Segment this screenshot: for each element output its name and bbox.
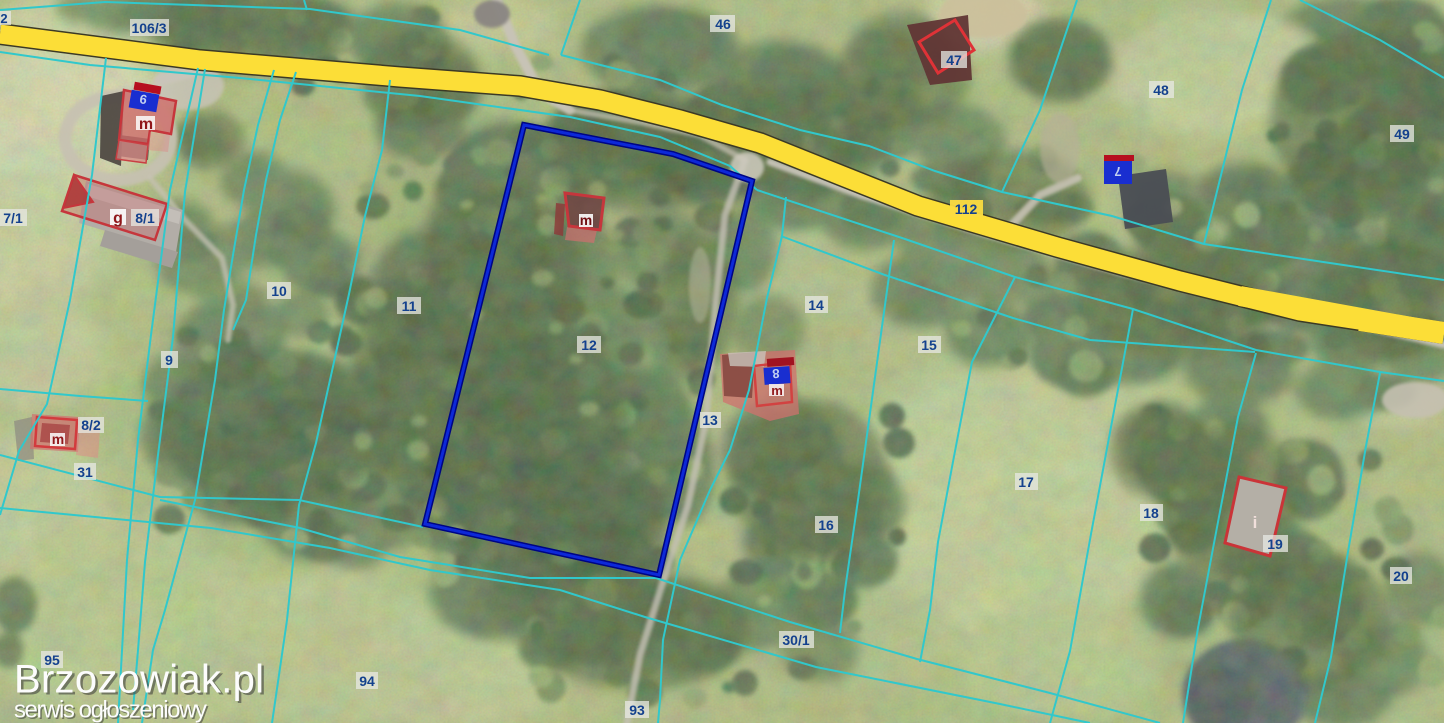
svg-text:30/1: 30/1 — [782, 632, 809, 648]
svg-text:8: 8 — [772, 366, 780, 381]
svg-text:11: 11 — [402, 298, 417, 314]
svg-text:7/1: 7/1 — [3, 210, 23, 226]
svg-text:18: 18 — [1143, 505, 1159, 521]
svg-text:112: 112 — [955, 201, 978, 217]
svg-text:15: 15 — [921, 337, 937, 353]
svg-text:94: 94 — [359, 673, 375, 689]
svg-text:9: 9 — [165, 352, 173, 368]
svg-text:46: 46 — [715, 16, 731, 32]
svg-text:m: m — [580, 212, 592, 228]
svg-text:8/1: 8/1 — [135, 210, 155, 226]
svg-text:m: m — [52, 431, 64, 447]
svg-text:31: 31 — [77, 464, 93, 480]
svg-text:m: m — [139, 116, 153, 133]
svg-text:19: 19 — [1267, 536, 1283, 552]
svg-text:106/3: 106/3 — [131, 20, 166, 36]
svg-text:8/2: 8/2 — [81, 417, 101, 433]
svg-text:m: m — [771, 383, 783, 398]
svg-text:7: 7 — [1114, 164, 1121, 179]
svg-text:10: 10 — [271, 283, 287, 299]
svg-text:Brzozowiak.pl: Brzozowiak.pl — [14, 658, 264, 702]
svg-text:16: 16 — [818, 517, 834, 533]
svg-text:49: 49 — [1394, 126, 1410, 142]
svg-text:14: 14 — [808, 297, 824, 313]
svg-text:93: 93 — [629, 702, 645, 718]
svg-text:47: 47 — [946, 52, 962, 68]
svg-text:20: 20 — [1393, 568, 1409, 584]
svg-text:17: 17 — [1018, 474, 1034, 490]
svg-text:serwis ogłoszeniowy: serwis ogłoszeniowy — [14, 697, 207, 723]
svg-text:13: 13 — [702, 412, 718, 428]
svg-text:2: 2 — [0, 11, 7, 26]
svg-text:48: 48 — [1153, 82, 1169, 98]
svg-text:12: 12 — [581, 337, 597, 353]
svg-text:i: i — [1253, 513, 1258, 532]
svg-text:g: g — [113, 210, 123, 227]
